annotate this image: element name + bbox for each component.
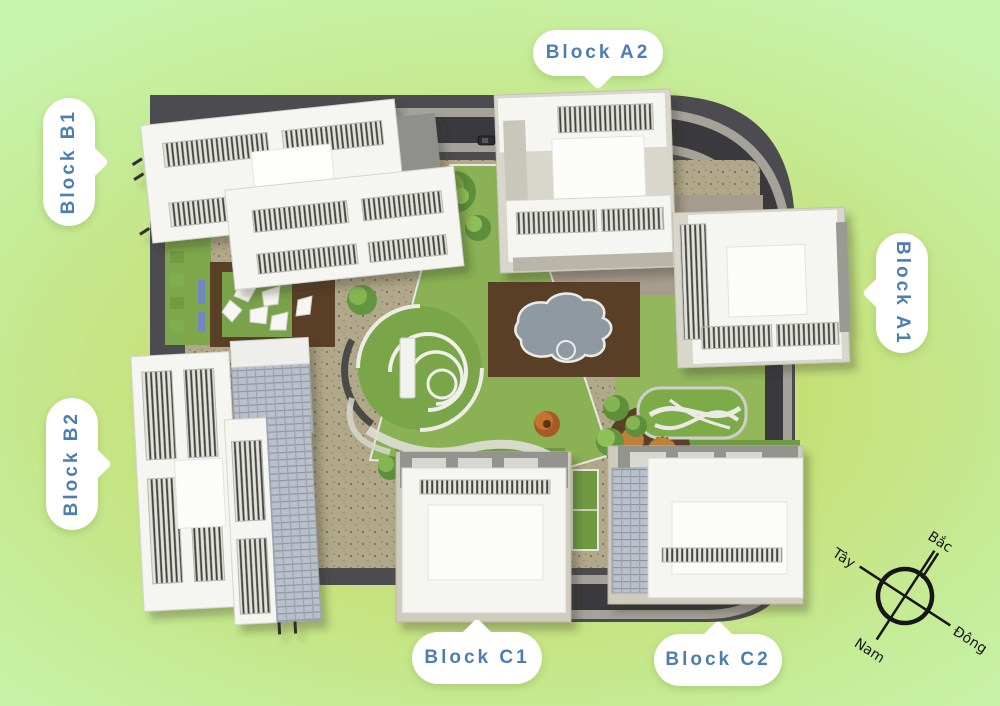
- compass-east-label: Đông: [950, 624, 990, 658]
- callout-block-a2-label: Block A2: [546, 42, 651, 64]
- callout-block-b1[interactable]: Block B1: [43, 98, 95, 226]
- swimming-pool: [515, 294, 611, 362]
- callout-block-a1[interactable]: Block A1: [876, 233, 928, 353]
- callout-block-a2[interactable]: Block A2: [533, 30, 663, 76]
- compass-rose: Bắc Nam Tây Đông: [815, 520, 995, 675]
- compass-south-label: Nam: [851, 635, 887, 666]
- orange-tree: [534, 411, 560, 437]
- compass-north-label: Bắc: [925, 528, 956, 556]
- badminton-court: [572, 470, 598, 550]
- building-block-c2: [608, 446, 803, 604]
- callout-block-b2[interactable]: Block B2: [46, 398, 98, 530]
- compass-west-label: Tây: [828, 545, 858, 572]
- callout-block-b2-label: Block B2: [61, 411, 83, 516]
- callout-block-c1[interactable]: Block C1: [412, 632, 542, 684]
- building-block-a2: [494, 89, 676, 273]
- callout-block-c2-label: Block C2: [665, 649, 770, 671]
- callout-block-b1-label: Block B1: [58, 109, 80, 214]
- building-block-c1: [396, 452, 571, 622]
- ribbon-court: [638, 388, 746, 438]
- callout-block-c2[interactable]: Block C2: [654, 634, 782, 686]
- callout-block-a1-label: Block A1: [891, 241, 913, 346]
- callout-block-c1-label: Block C1: [424, 647, 529, 669]
- building-block-a1: [672, 207, 851, 368]
- building-block-b2: [130, 337, 323, 641]
- master-plan-page: Block A2 Block B1 Block A1 Block B2 Bloc…: [0, 0, 1000, 706]
